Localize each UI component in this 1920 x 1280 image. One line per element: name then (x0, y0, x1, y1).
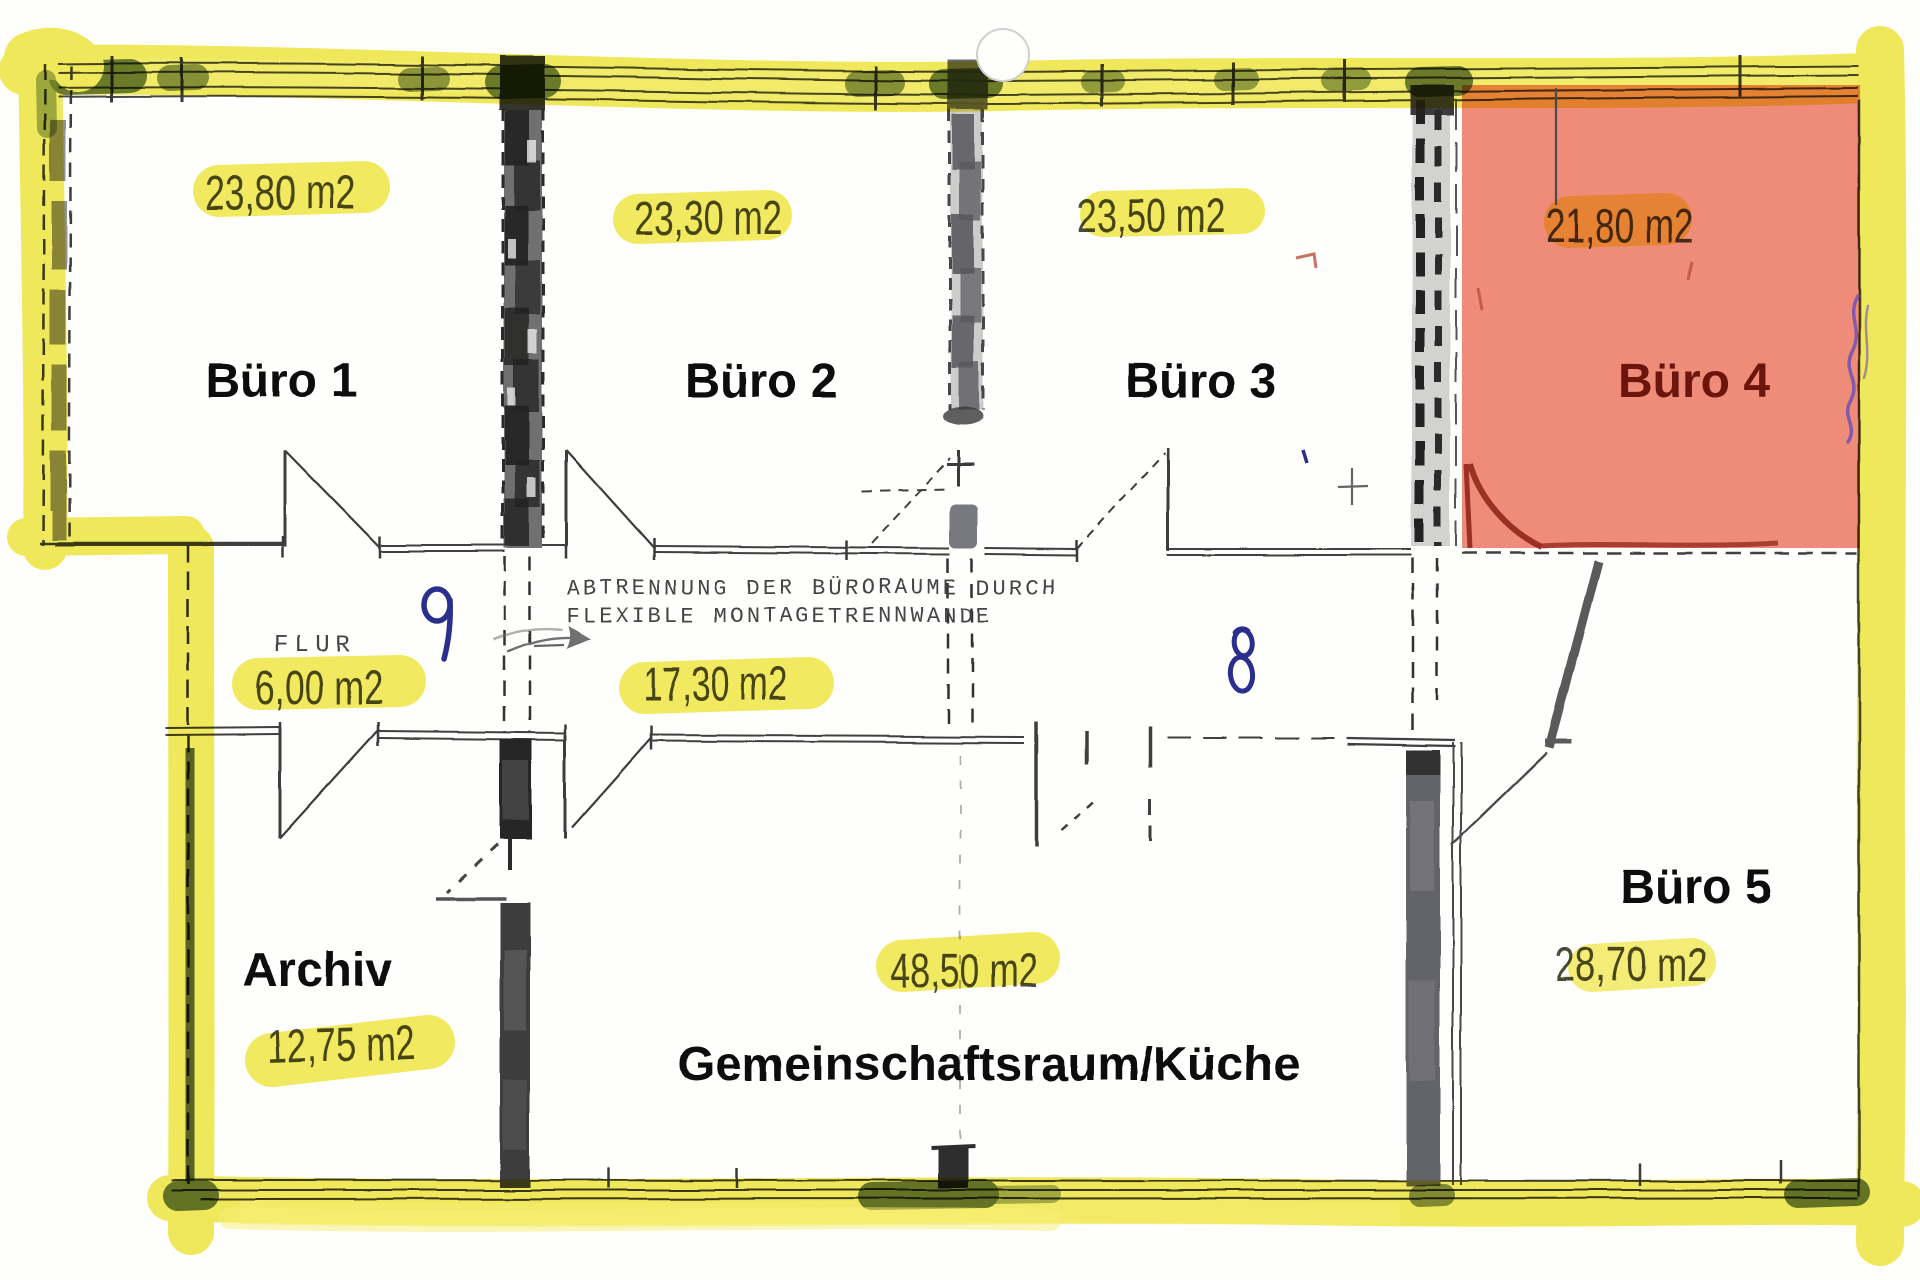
svg-text:Gemeinschaftsraum/Küche: Gemeinschaftsraum/Küche (678, 1038, 1300, 1091)
svg-text:FLUR: FLUR (274, 632, 356, 659)
svg-text:Büro 1: Büro 1 (205, 355, 357, 408)
svg-text:Büro 4: Büro 4 (1618, 355, 1770, 408)
svg-text:Archiv: Archiv (243, 944, 393, 997)
svg-text:Büro 3: Büro 3 (1125, 355, 1277, 408)
svg-text:Büro 5: Büro 5 (1620, 861, 1772, 914)
svg-text:FLEXIBLE MONTAGETRENNWANDE: FLEXIBLE MONTAGETRENNWANDE (566, 604, 992, 629)
svg-text:Büro 2: Büro 2 (685, 355, 837, 408)
svg-text:ABTRENNUNG DER BÜRORAUME DURCH: ABTRENNUNG DER BÜRORAUME DURCH (566, 576, 1058, 601)
